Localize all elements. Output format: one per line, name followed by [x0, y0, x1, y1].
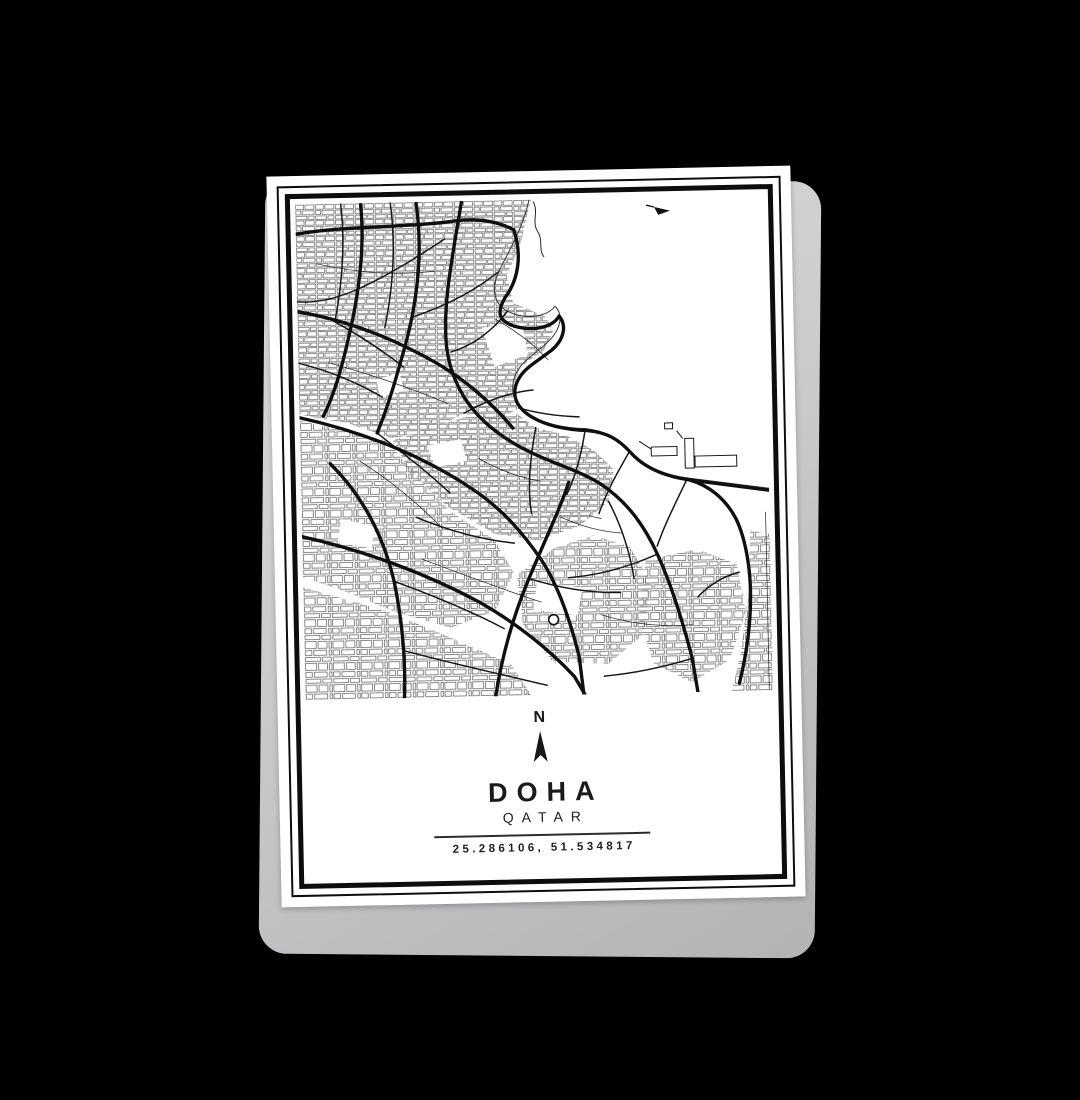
poster-content: N DOHA QATAR 25.286106, 51.534817 [295, 194, 777, 879]
scene-background: N DOHA QATAR 25.286106, 51.534817 [0, 0, 1080, 1100]
north-arrow-icon [532, 731, 549, 762]
poster-subtitle: QATAR [503, 808, 589, 826]
map-poster: N DOHA QATAR 25.286106, 51.534817 [266, 166, 805, 908]
title-divider [434, 832, 650, 839]
roundabout [549, 615, 559, 625]
city-map-svg [295, 194, 773, 701]
compass-north-label: N [533, 710, 546, 726]
poster-title: DOHA [488, 777, 604, 807]
doha-street-map [295, 194, 773, 701]
poster-coordinates: 25.286106, 51.534817 [453, 840, 636, 857]
